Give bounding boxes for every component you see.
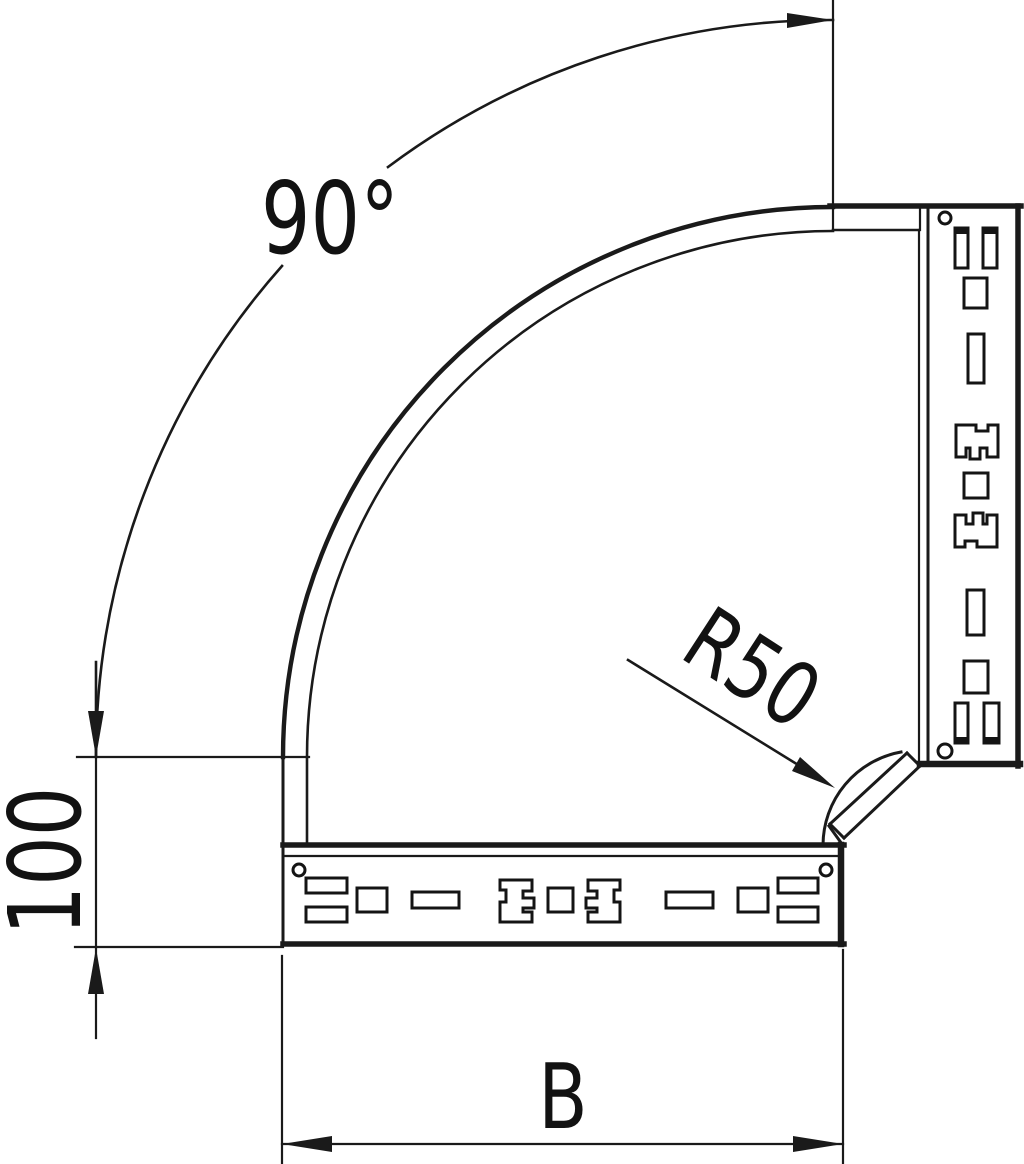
square-hole bbox=[964, 278, 987, 308]
right-rail bbox=[919, 206, 1020, 766]
cable-tray-bend-technical-drawing: 90° 100 R50 B bbox=[0, 0, 1024, 1164]
square-hole bbox=[964, 473, 988, 498]
angle-label: 90° bbox=[261, 162, 399, 278]
drawing-canvas: 90° 100 R50 B bbox=[0, 0, 1024, 1164]
coupler-hole bbox=[586, 880, 620, 922]
slot-cap bbox=[984, 737, 999, 743]
slot-cap bbox=[983, 228, 997, 234]
inner-radius-arc bbox=[823, 752, 901, 845]
radius-callout: R50 bbox=[628, 588, 838, 788]
width-label: B bbox=[538, 1045, 587, 1150]
arrowhead-diagonal bbox=[792, 757, 835, 788]
right-rail-perforations bbox=[938, 212, 999, 758]
slot-hole bbox=[778, 878, 818, 893]
slot-hole bbox=[778, 907, 818, 922]
arrowhead-left bbox=[282, 1136, 332, 1152]
square-hole bbox=[964, 661, 988, 693]
slot-hole bbox=[666, 892, 713, 908]
arrowhead-right bbox=[787, 13, 833, 28]
angle-arc-lower bbox=[96, 266, 282, 757]
bottom-rail bbox=[283, 845, 844, 944]
screw-hole bbox=[939, 212, 951, 224]
coupler-hole bbox=[956, 425, 998, 459]
square-hole bbox=[738, 888, 768, 912]
screw-hole bbox=[820, 864, 832, 876]
slot-cap bbox=[955, 228, 968, 234]
arrowhead-up bbox=[88, 948, 104, 994]
width-dimension: B bbox=[282, 950, 843, 1164]
square-hole bbox=[357, 888, 387, 912]
end-length-label: 100 bbox=[0, 787, 105, 936]
slot-hole bbox=[306, 878, 347, 893]
tray-outline bbox=[283, 206, 1021, 944]
coupler-hole bbox=[955, 513, 997, 547]
slot-cap bbox=[955, 737, 968, 743]
square-hole bbox=[548, 888, 573, 912]
arrowhead-down bbox=[88, 711, 104, 757]
coupler-hole bbox=[500, 880, 534, 922]
inner-corner-bevel bbox=[823, 752, 920, 845]
slot-hole bbox=[306, 907, 347, 922]
slot-hole bbox=[967, 590, 984, 635]
slot-hole bbox=[412, 892, 459, 908]
radius-label: R50 bbox=[666, 588, 838, 750]
angle-arc-upper bbox=[388, 20, 833, 167]
screw-hole bbox=[938, 744, 952, 758]
arrowhead-right bbox=[793, 1136, 843, 1152]
screw-hole bbox=[293, 864, 305, 876]
slot-hole bbox=[968, 334, 984, 383]
end-length-dimension: 100 bbox=[0, 757, 283, 1038]
bottom-rail-perforations bbox=[293, 864, 832, 922]
